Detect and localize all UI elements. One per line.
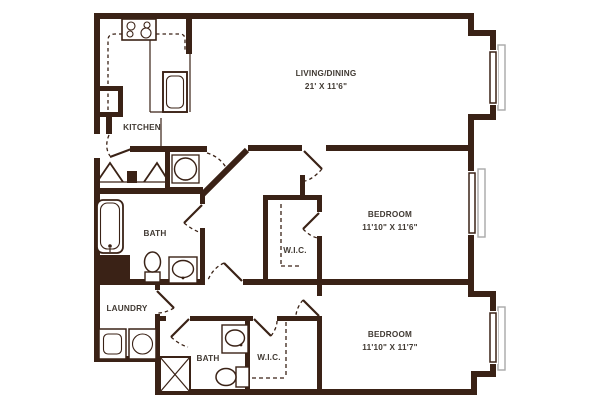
wic2-shelf-dashes	[252, 322, 286, 378]
kitchen-bottom-wall	[130, 146, 207, 152]
bath1-door	[184, 205, 202, 233]
room-labels: LIVING/DINING 21' X 11'6" KITCHEN BATH W…	[106, 69, 417, 363]
stove-icon	[122, 19, 156, 40]
toilet-icon-bath1	[145, 252, 161, 282]
bedroom1-dims: 11'10" X 11'6"	[362, 223, 417, 232]
wall-top	[94, 13, 474, 19]
bath1-label: BATH	[144, 229, 167, 238]
bedroom1-label: BEDROOM	[368, 210, 412, 219]
hall-chamfer-wall	[202, 150, 247, 195]
washer-icon	[99, 329, 126, 359]
living-window	[488, 45, 505, 110]
entry-door	[107, 135, 134, 157]
bath2-door	[171, 319, 189, 347]
floor-plan: LIVING/DINING 21' X 11'6" KITCHEN BATH W…	[0, 0, 600, 410]
refrigerator-icon	[163, 72, 187, 112]
doors	[96, 135, 322, 347]
wall-bottom	[155, 389, 477, 395]
bathtub-icon	[97, 200, 123, 253]
water-heater-icon	[172, 155, 199, 183]
wic1-label: W.I.C.	[283, 246, 307, 255]
bedroom2-window	[488, 307, 505, 370]
windows	[466, 45, 505, 370]
kitchen-cabinet-dashed-line-2	[156, 34, 185, 52]
wic1-shelf-dashes	[281, 204, 300, 266]
kitchen-living-stub	[186, 13, 192, 54]
shower-stall-icon	[160, 357, 190, 392]
entry-stub-wall	[106, 117, 112, 134]
bath1-vanity-counter	[96, 255, 130, 282]
wic2-label: W.I.C.	[257, 353, 281, 362]
closet-stub	[127, 171, 137, 183]
bedroom2-dims: 11'10" X 11'7"	[362, 343, 417, 352]
bedroom1-window	[466, 169, 485, 237]
dryer-icon	[129, 329, 156, 359]
toilet-icon-bath2	[216, 367, 249, 387]
sink-icon-bath1	[169, 257, 197, 283]
wic2-door	[254, 319, 277, 336]
floor-plan-page: LIVING/DINING 21' X 11'6" KITCHEN BATH W…	[0, 0, 600, 410]
laundry-door	[157, 291, 174, 313]
hall-door	[208, 263, 242, 281]
bedroom1-door	[304, 151, 322, 181]
sink-icon-bath2	[222, 325, 248, 353]
living-dims: 21' X 11'6"	[305, 82, 347, 91]
bedroom2-label: BEDROOM	[368, 330, 412, 339]
bedroom1-door-stub	[300, 175, 305, 200]
bath2-label: BATH	[197, 354, 220, 363]
living-label: LIVING/DINING	[296, 69, 357, 78]
bath1-top-wall	[94, 188, 203, 194]
bedroom2-door	[296, 300, 319, 316]
wic1-door	[303, 213, 319, 238]
kitchen-label: KITCHEN	[123, 123, 161, 132]
laundry-label: LAUNDRY	[106, 304, 147, 313]
